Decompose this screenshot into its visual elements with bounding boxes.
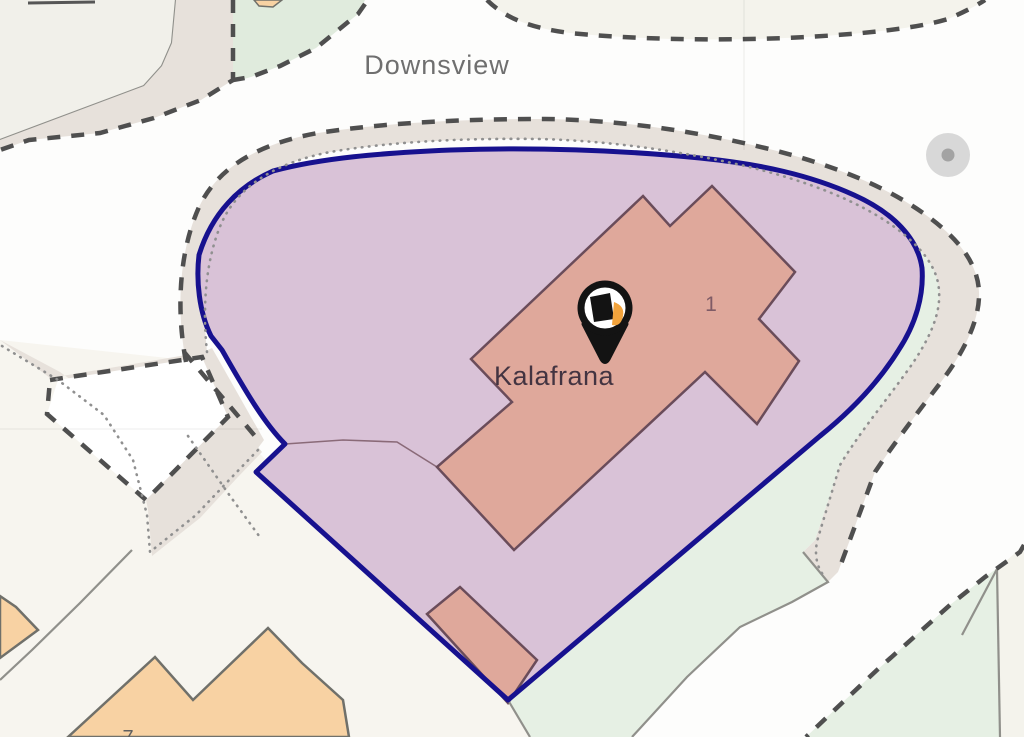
map-circle-feature-dot (942, 149, 955, 162)
land-parcel-bottom-right (997, 545, 1024, 737)
map-svg: Downsview 1 7 Kalafrana (0, 0, 1024, 737)
street-label: Downsview (364, 50, 510, 80)
property-name-label: Kalafrana (494, 361, 615, 391)
house-number-label: 7 (122, 727, 133, 737)
plot-number-label: 1 (705, 293, 717, 316)
map-canvas[interactable]: Downsview 1 7 Kalafrana (0, 0, 1024, 737)
clipped-building-edge-top-left (28, 2, 95, 3)
